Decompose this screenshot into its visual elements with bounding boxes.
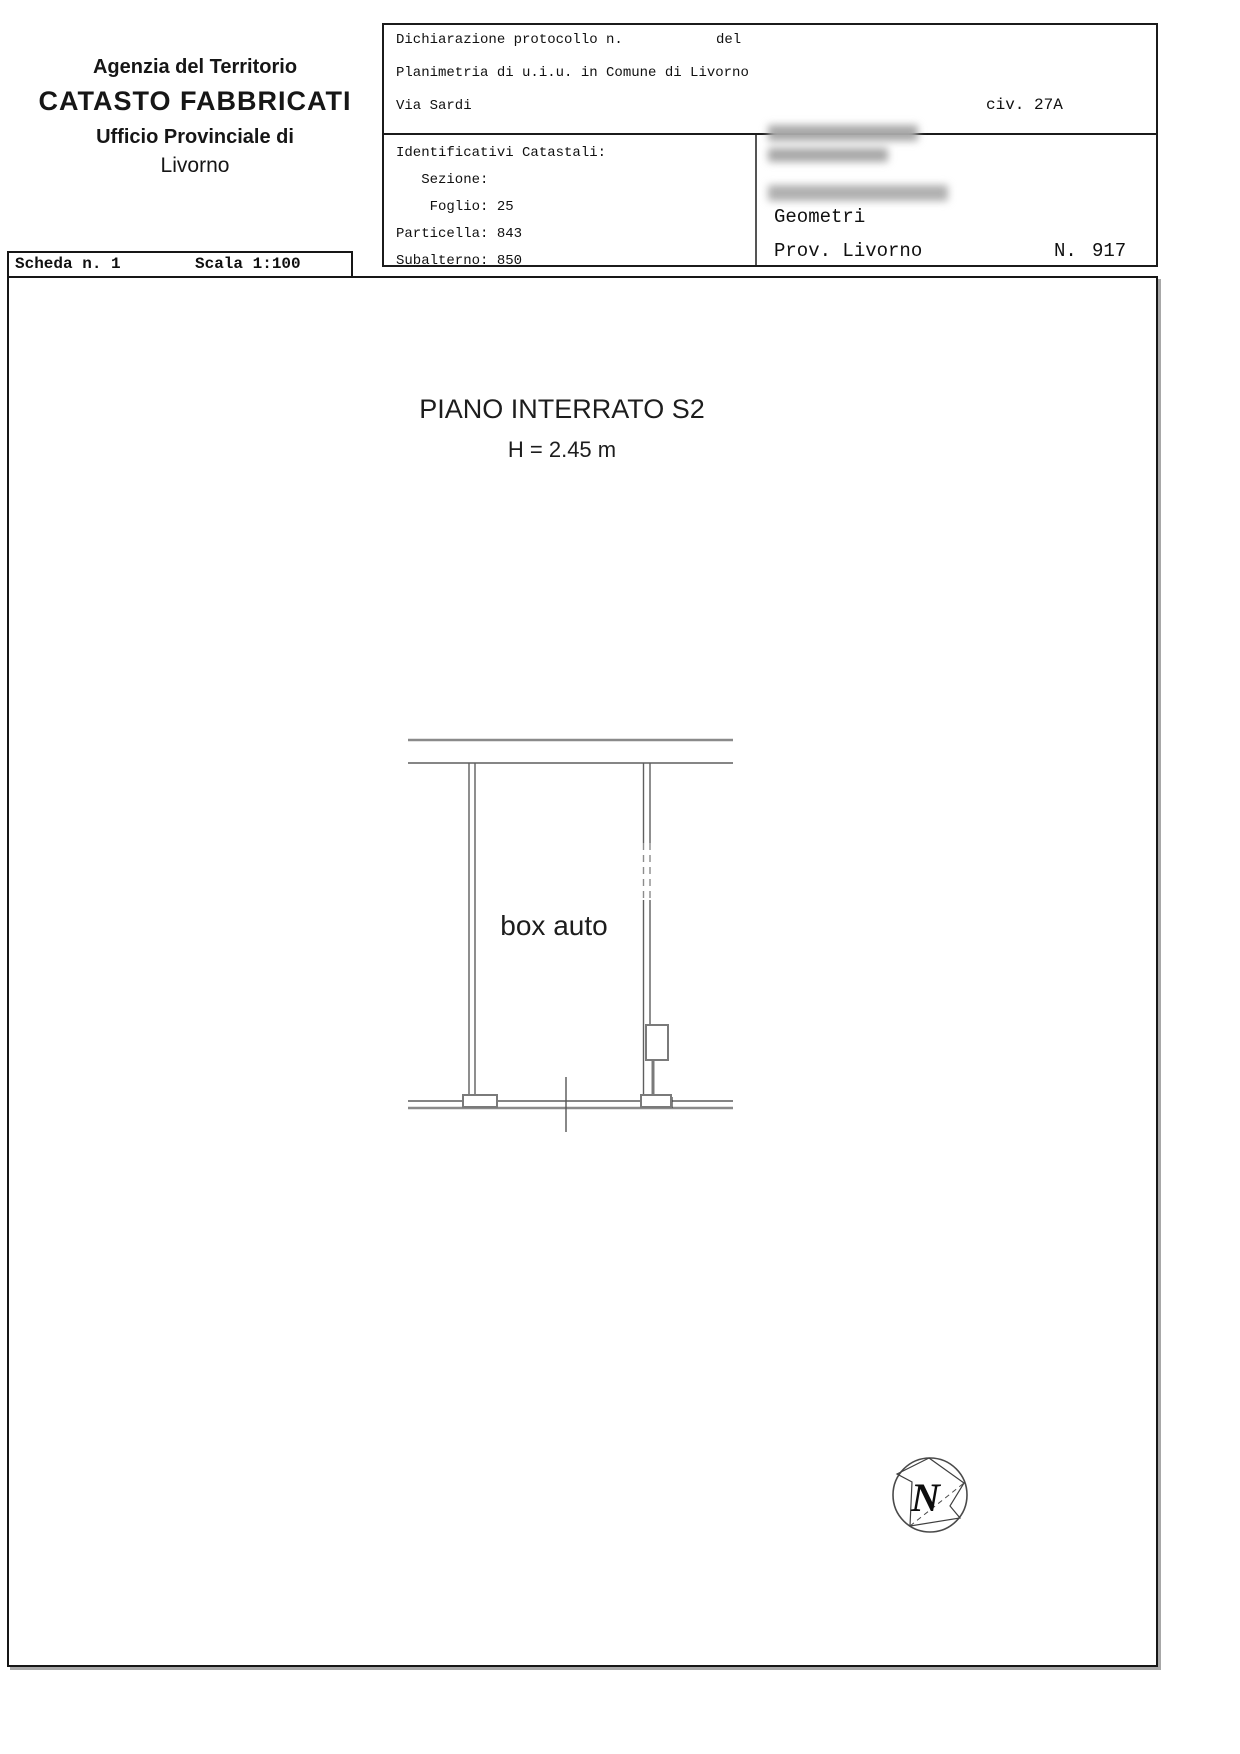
redacted-stamp-line [768,185,948,201]
agency-header: Agenzia del Territorio CATASTO FABBRICAT… [30,56,360,178]
particella-row: Particella: 843 [396,226,606,253]
identifiers-title: Identificativi Catastali: [396,145,606,172]
room-label: box auto [464,910,644,942]
plan-left-wall-foot [463,1095,497,1107]
cadastral-document-page: Agenzia del Territorio CATASTO FABBRICAT… [0,0,1240,1754]
civic-number: civ. 27A [986,96,1063,114]
protocol-del-label: del [716,32,741,48]
province-label: Prov. Livorno [774,240,922,262]
plan-wall-box [646,1025,668,1060]
ceiling-height-label: H = 2.45 m [382,437,742,463]
registration-n-value: 917 [1092,240,1126,262]
planimetria-line: Planimetria di u.i.u. in Comune di Livor… [396,65,749,81]
scheda-number: Scheda n. 1 [15,255,121,273]
geometri-label: Geometri [774,206,865,228]
plan-right-wall-foot [641,1095,671,1107]
cadastral-identifiers: Identificativi Catastali: Sezione: Fogli… [396,145,606,280]
declaration-box: Dichiarazione protocollo n. del Planimet… [382,23,1158,267]
redacted-stamp-block [768,125,964,177]
provincial-office-label: Ufficio Provinciale di [30,126,360,149]
protocol-label: Dichiarazione protocollo n. [396,32,623,48]
street-name: Via Sardi [396,98,472,114]
scheda-strip: Scheda n. 1 Scala 1:100 [7,251,353,278]
office-city: Livorno [30,154,360,178]
catasto-fabbricati-title: CATASTO FABBRICATI [30,86,360,117]
sezione-row: Sezione: [396,172,606,199]
north-arrow-icon: N [884,1449,978,1543]
scale-label: Scala 1:100 [195,255,301,273]
agency-name: Agenzia del Territorio [30,56,360,79]
north-letter: N [910,1475,942,1520]
floor-title-block: PIANO INTERRATO S2 H = 2.45 m [382,394,742,463]
floor-title: PIANO INTERRATO S2 [382,394,742,425]
declaration-vertical-divider [755,135,757,265]
registration-n-label: N. [1054,240,1077,262]
foglio-row: Foglio: 25 [396,199,606,226]
